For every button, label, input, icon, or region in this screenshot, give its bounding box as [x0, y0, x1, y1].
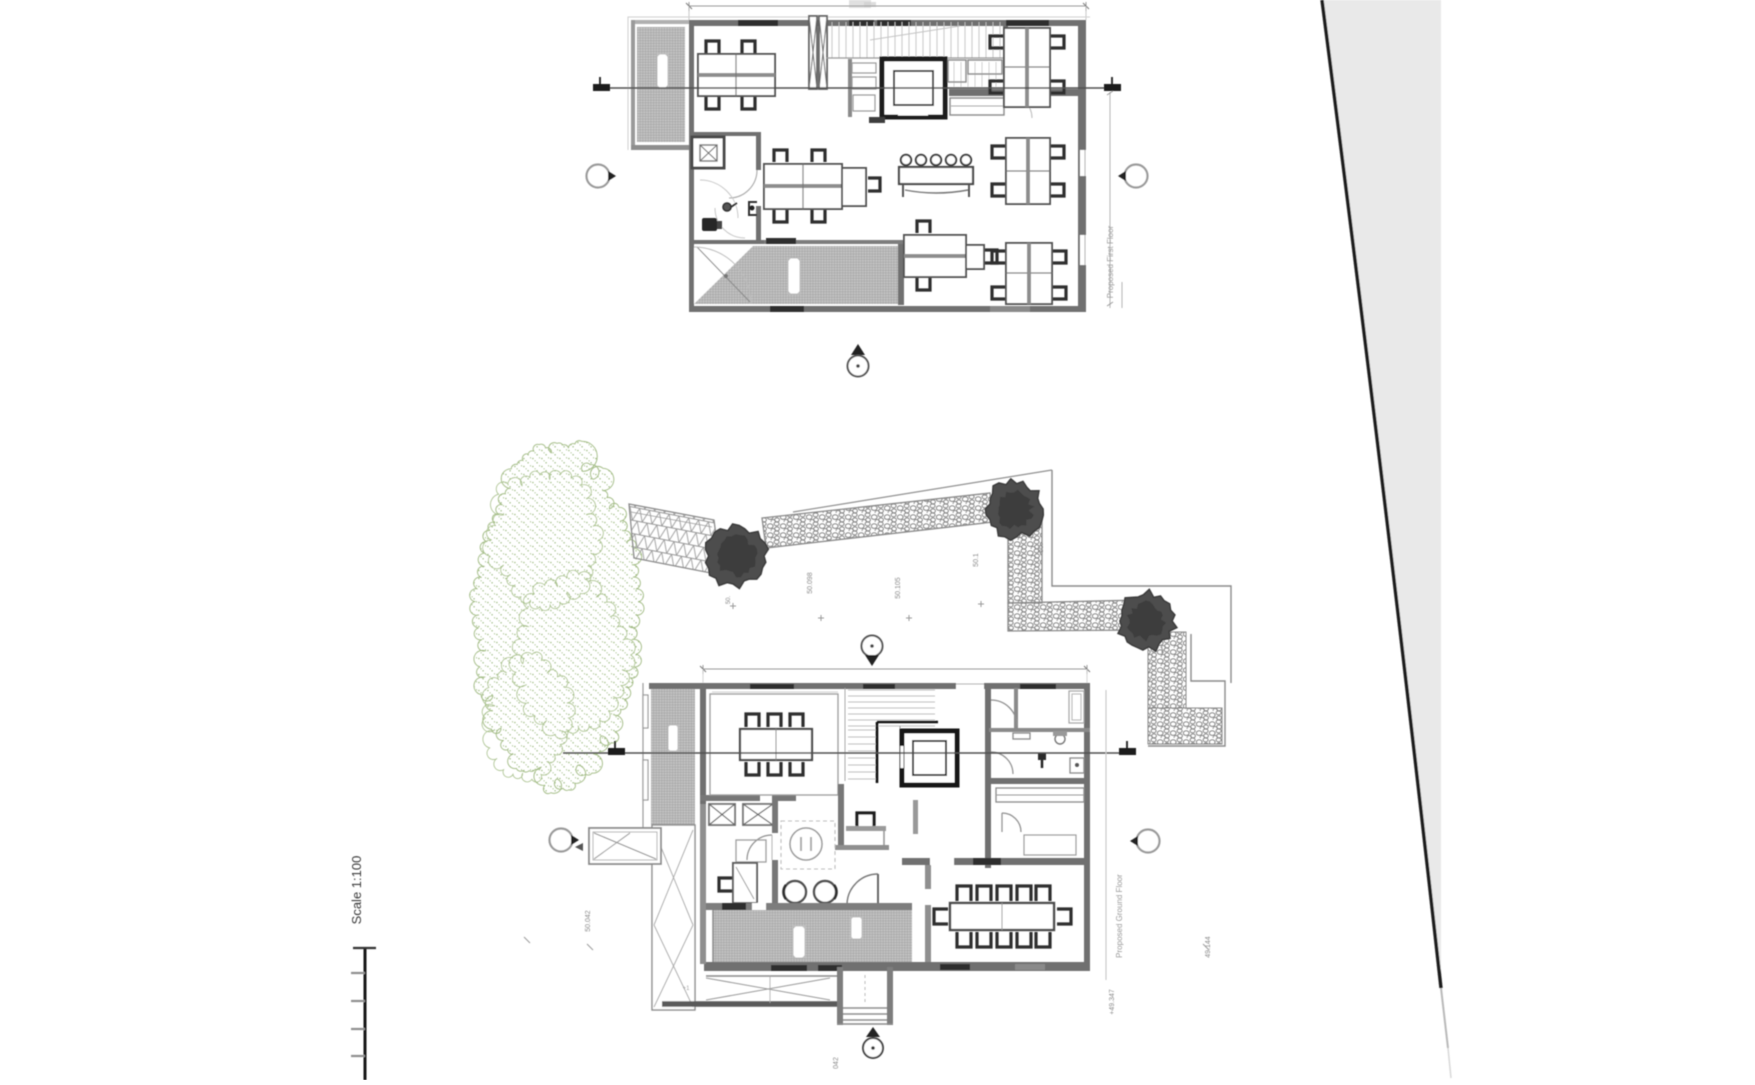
- svg-text:50.105: 50.105: [895, 577, 902, 599]
- svg-text:50.1: 50.1: [973, 553, 980, 567]
- svg-text:+1: +1: [683, 986, 691, 992]
- svg-text:50.042: 50.042: [585, 910, 592, 932]
- svg-text:50.098: 50.098: [807, 572, 814, 594]
- svg-text:+49.347: +49.347: [1109, 989, 1116, 1015]
- svg-text:Scale 1:100: Scale 1:100: [349, 856, 364, 925]
- svg-text:50.: 50.: [1038, 543, 1045, 553]
- svg-text:50.: 50.: [726, 595, 732, 604]
- svg-text:Proposed First Floor: Proposed First Floor: [1106, 225, 1115, 298]
- svg-text:Proposed Ground Floor: Proposed Ground Floor: [1115, 874, 1124, 958]
- svg-text:042: 042: [833, 1057, 840, 1069]
